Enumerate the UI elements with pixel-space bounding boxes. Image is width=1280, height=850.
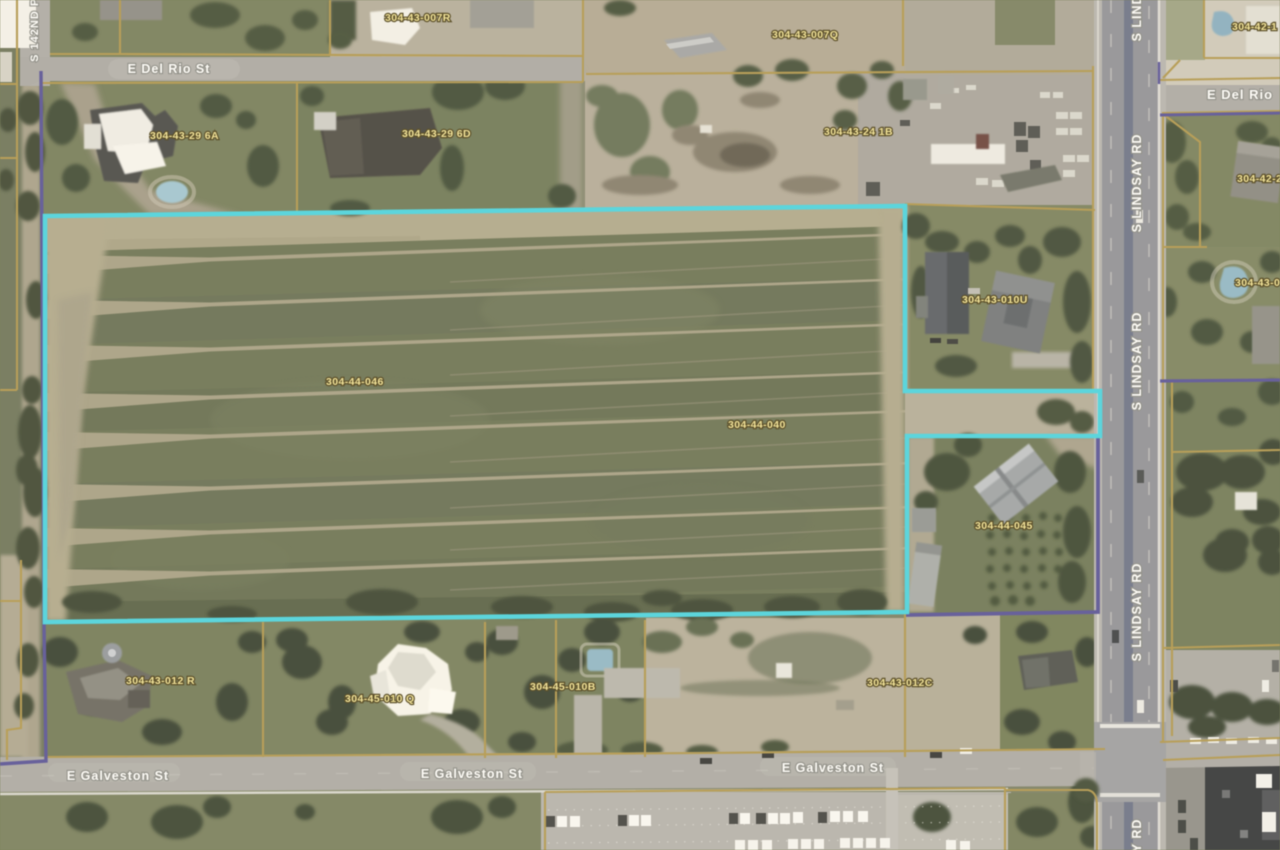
svg-text:304-43-29 6A: 304-43-29 6A	[150, 130, 219, 142]
svg-text:304-42-2: 304-42-2	[1237, 173, 1280, 185]
svg-text:E Galveston St: E Galveston St	[782, 761, 884, 775]
svg-text:304-43-012 R: 304-43-012 R	[126, 675, 195, 687]
svg-text:304-42-1: 304-42-1	[1232, 21, 1277, 33]
svg-text:304-45-010 Q: 304-45-010 Q	[345, 693, 415, 705]
svg-text:S LINDSAY RD: S LINDSAY RD	[1130, 819, 1144, 850]
svg-text:S LINDSAY RD: S LINDSAY RD	[1130, 0, 1144, 41]
svg-text:304-44-045: 304-44-045	[975, 520, 1033, 532]
svg-text:304-43-24 1B: 304-43-24 1B	[824, 126, 893, 138]
svg-text:304-45-010B: 304-45-010B	[530, 681, 596, 693]
svg-text:304-43-29 6D: 304-43-29 6D	[402, 128, 471, 140]
svg-text:S 142ND PL: S 142ND PL	[29, 0, 41, 62]
svg-text:304-43-007R: 304-43-007R	[385, 12, 451, 24]
svg-text:E Galveston St: E Galveston St	[421, 767, 523, 781]
svg-text:304-43-007Q: 304-43-007Q	[772, 29, 838, 41]
svg-text:S LINDSAY RD: S LINDSAY RD	[1130, 563, 1144, 662]
svg-text:E Del Rio: E Del Rio	[1207, 87, 1273, 102]
svg-text:S LINDSAY RD: S LINDSAY RD	[1130, 312, 1144, 411]
svg-text:S LINDSAY RD: S LINDSAY RD	[1130, 134, 1144, 233]
svg-text:304-43-012C: 304-43-012C	[867, 677, 933, 689]
svg-text:304-43-0: 304-43-0	[1235, 277, 1280, 289]
svg-text:E Del Rio St: E Del Rio St	[128, 62, 211, 76]
svg-text:304-44-040: 304-44-040	[728, 419, 786, 431]
svg-text:304-44-046: 304-44-046	[326, 376, 384, 388]
svg-text:E Galveston St: E Galveston St	[67, 769, 169, 783]
svg-text:304-43-010U: 304-43-010U	[962, 294, 1028, 306]
